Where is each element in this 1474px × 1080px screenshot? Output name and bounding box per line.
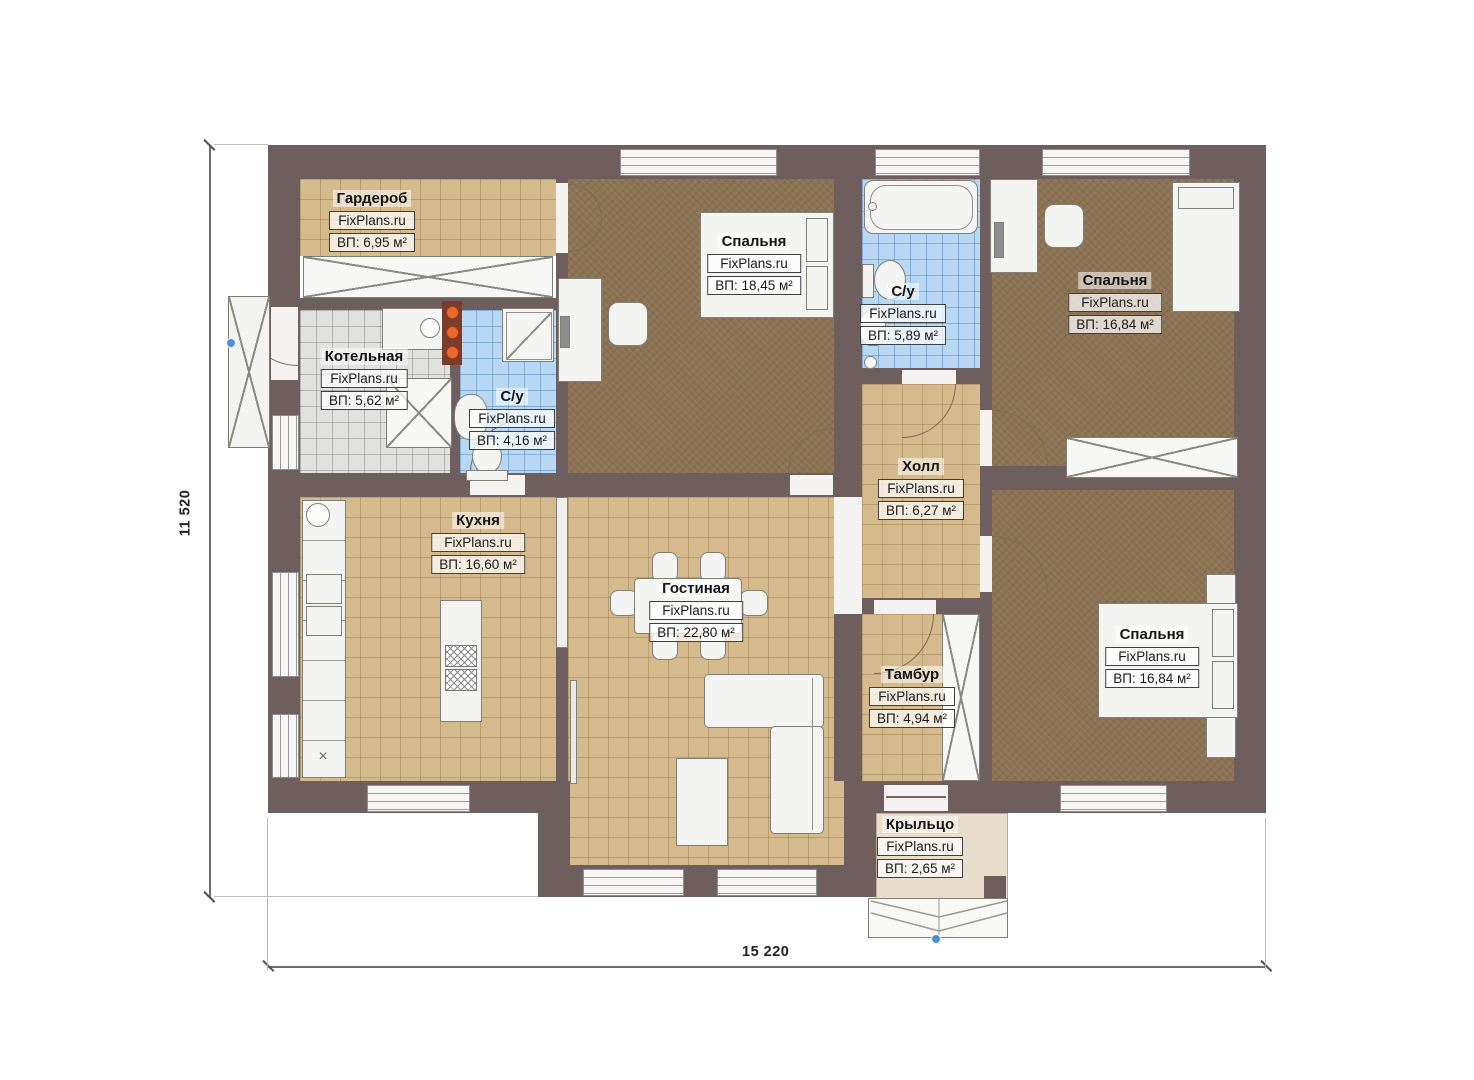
door-opening-vestibule	[874, 600, 936, 614]
room-area: ВП: 4,16 м²	[469, 431, 555, 450]
watermark: FixPlans.ru	[469, 409, 555, 428]
window-bottom-bedroom3	[1060, 785, 1167, 812]
room-label-wardrobe: Гардероб FixPlans.ru ВП: 6,95 м²	[329, 190, 415, 252]
dimension-line-horizontal	[268, 966, 1266, 968]
extension-line	[267, 818, 268, 970]
pillow	[806, 266, 828, 310]
heater-valve	[446, 326, 459, 339]
room-name: Тамбур	[881, 666, 943, 683]
bathtub-faucet	[868, 202, 877, 211]
room-label-hall: Холл FixPlans.ru ВП: 6,27 м²	[878, 458, 964, 520]
wall-central-vertical	[834, 179, 862, 781]
sofa-vertical	[770, 726, 824, 834]
extension-line	[214, 896, 538, 897]
wall-bay-right	[844, 781, 876, 897]
room-area: ВП: 5,89 м²	[860, 326, 946, 345]
pillow	[1212, 661, 1234, 709]
heater-valve	[446, 346, 459, 359]
door-opening-bath-main	[902, 370, 956, 384]
watermark: FixPlans.ru	[649, 601, 743, 620]
room-area: ВП: 4,94 м²	[869, 709, 955, 728]
passage-living-hall	[834, 497, 862, 614]
door-opening-bedroom2	[980, 410, 992, 466]
room-name: С/у	[496, 388, 527, 405]
room-name: Спальня	[718, 233, 791, 250]
kitchen-sink-bowl	[306, 606, 342, 636]
room-name: Спальня	[1116, 626, 1189, 643]
door-opening-wardrobe	[556, 183, 568, 253]
dimension-line-vertical	[209, 145, 211, 897]
stove-burners	[445, 669, 477, 691]
kitchen-counter	[302, 500, 346, 778]
room-area: ВП: 16,60 м²	[431, 555, 525, 574]
room-name: С/у	[887, 283, 918, 300]
door-opening-bedroom1	[790, 475, 833, 495]
extension-line	[214, 144, 268, 145]
dimension-height-label: 11 520	[177, 490, 193, 537]
extension-line	[1265, 818, 1266, 970]
room-name: Кухня	[452, 512, 504, 529]
room-label-bath-small: С/у FixPlans.ru ВП: 4,16 м²	[469, 388, 555, 450]
window-left-boiler	[272, 415, 299, 470]
entry-canopy	[228, 296, 270, 448]
door-opening-entry	[884, 785, 948, 811]
closet-bedroom2	[1066, 437, 1238, 478]
sofa-horizontal	[704, 674, 824, 728]
room-label-boiler: Котельная FixPlans.ru ВП: 5,62 м²	[321, 348, 408, 410]
watermark: FixPlans.ru	[431, 533, 525, 552]
porch-pillar	[984, 876, 1006, 898]
heater-valve	[446, 306, 459, 319]
watermark: FixPlans.ru	[869, 687, 955, 706]
window-bay-1	[583, 869, 684, 896]
room-area: ВП: 22,80 м²	[649, 623, 743, 642]
watermark: FixPlans.ru	[860, 304, 946, 323]
kitchen-corner-sink	[306, 503, 330, 527]
window-left-kitchen-2	[272, 714, 299, 778]
floor-drain	[864, 356, 877, 369]
kitchen-symbol: ×	[312, 746, 334, 768]
floor-plan-canvas: × Гардероб FixPlans.ru ВП: 6,95 м² Котел…	[0, 0, 1474, 1080]
desk-accessory	[994, 222, 1004, 258]
watermark: FixPlans.ru	[1105, 647, 1199, 666]
wall-middle-horizontal	[300, 473, 862, 497]
pillow	[1212, 609, 1234, 657]
wall-exterior-left	[268, 145, 300, 813]
room-label-kitchen: Кухня FixPlans.ru ВП: 16,60 м²	[431, 512, 525, 574]
porch-steps	[868, 898, 1008, 938]
porch-steps-icon	[869, 899, 1009, 939]
room-label-vestibule: Тамбур FixPlans.ru ВП: 4,94 м²	[869, 666, 955, 728]
room-name: Гардероб	[333, 190, 412, 207]
marker-dot	[931, 934, 941, 944]
pillow	[806, 218, 828, 262]
chair-bedroom2	[1044, 204, 1084, 248]
room-area: ВП: 6,95 м²	[329, 233, 415, 252]
watermark: FixPlans.ru	[321, 369, 408, 388]
room-label-bath-main: С/у FixPlans.ru ВП: 5,89 м²	[860, 283, 946, 345]
window-top-bedroom2	[1042, 149, 1190, 176]
watermark: FixPlans.ru	[878, 479, 964, 498]
watermark: FixPlans.ru	[707, 254, 801, 273]
bathtub-inner	[870, 185, 973, 230]
dimension-width-label: 15 220	[742, 944, 789, 960]
closet-wardrobe	[303, 256, 553, 298]
shower-glass	[506, 312, 552, 360]
marker-dot	[226, 338, 236, 348]
room-label-bedroom-3: Спальня FixPlans.ru ВП: 16,84 м²	[1105, 626, 1199, 688]
dining-chair	[740, 590, 768, 616]
room-label-living: Гостиная FixPlans.ru ВП: 22,80 м²	[649, 580, 743, 642]
window-top-bedroom1	[620, 149, 777, 176]
entry-door-leaf	[886, 796, 946, 798]
coffee-table	[676, 758, 728, 846]
wall-kitchen-living	[556, 648, 568, 781]
stove-burners	[445, 645, 477, 667]
desk-accessory	[560, 316, 570, 348]
sofa-back-line	[812, 678, 813, 830]
window-bay-2	[717, 869, 817, 896]
room-label-bedroom-2: Спальня FixPlans.ru ВП: 16,84 м²	[1068, 272, 1162, 334]
room-area: ВП: 16,84 м²	[1105, 669, 1199, 688]
window-bottom-kitchen	[367, 785, 470, 812]
room-area: ВП: 18,45 м²	[707, 276, 801, 295]
watermark: FixPlans.ru	[329, 211, 415, 230]
toilet-tank-small	[466, 470, 508, 481]
room-area: ВП: 2,65 м²	[877, 859, 963, 878]
room-area: ВП: 5,62 м²	[321, 391, 408, 410]
room-area: ВП: 6,27 м²	[878, 501, 964, 520]
kitchen-sink-bowl	[306, 574, 342, 604]
partition-kitchen-living	[556, 497, 568, 648]
watermark: FixPlans.ru	[1068, 293, 1162, 312]
window-left-kitchen-1	[272, 572, 299, 677]
boiler-sink	[420, 318, 440, 338]
room-label-bedroom-1: Спальня FixPlans.ru ВП: 18,45 м²	[707, 233, 801, 295]
room-name: Гостиная	[658, 580, 734, 597]
room-name: Холл	[898, 458, 944, 475]
room-name: Крыльцо	[882, 816, 958, 833]
tv-console	[570, 680, 577, 784]
door-opening-bedroom3	[980, 536, 992, 592]
window-top-bath	[875, 149, 980, 176]
chair-bedroom1	[608, 302, 648, 346]
room-area: ВП: 16,84 м²	[1068, 315, 1162, 334]
room-name: Спальня	[1079, 272, 1152, 289]
pillow	[1178, 187, 1234, 209]
watermark: FixPlans.ru	[877, 837, 963, 856]
room-label-porch: Крыльцо FixPlans.ru ВП: 2,65 м²	[877, 816, 963, 878]
room-name: Котельная	[321, 348, 408, 365]
